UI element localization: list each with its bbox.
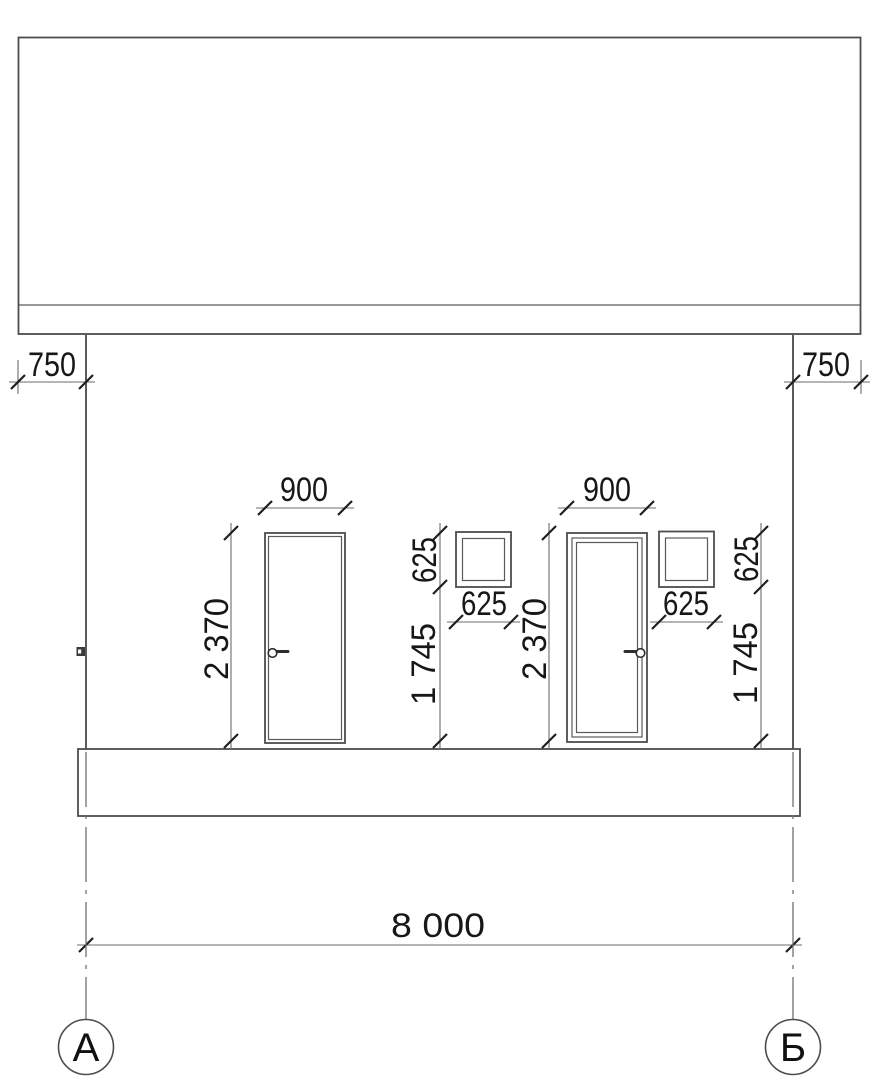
roof-outline [19,38,861,335]
door-left [265,533,345,743]
dim-door-right-height: 2 370 [516,523,556,750]
axis-right-label: Б [780,1026,806,1070]
drawing-canvas: 750 750 900 900 2 370 625 1 745 [0,0,879,1080]
dim-door-right-width: 900 [558,471,656,515]
dim-label-window-right-sill: 1 745 [727,622,765,704]
dim-label-door-right-height: 2 370 [516,598,554,680]
dim-window-right-heights: 625 1 745 [727,523,768,750]
dim-label-door-left-height: 2 370 [198,598,236,680]
window-right [659,532,714,588]
dim-overall-width: 8 000 [77,907,802,952]
wall-handle-mark [77,647,86,656]
door-left-handle-rose [268,649,277,658]
dim-label-window-left-width: 625 [461,585,507,623]
plinth [78,749,800,816]
door-left-frame [265,533,345,743]
dim-window-right-width: 625 [650,585,723,629]
window-right-frame [659,532,714,588]
dim-label-overall-width: 8 000 [391,907,485,945]
axis-left-label: А [73,1026,100,1070]
door-right-handle-rose [636,649,645,658]
dim-label-door-left-width: 900 [280,471,328,509]
dim-label-window-right-width: 625 [663,585,709,623]
dim-label-window-right-height: 625 [728,536,766,582]
dim-label-window-left-height: 625 [406,537,444,583]
dim-label-overhang-right: 750 [802,346,850,384]
dim-label-overhang-left: 750 [28,346,76,384]
dim-label-window-left-sill: 1 745 [405,623,443,705]
wall-mark-dot [78,650,81,654]
window-left [456,532,511,587]
dim-overhang-left: 750 [9,346,95,394]
door-right [567,533,647,742]
roof [19,38,861,335]
dim-door-left-height: 2 370 [198,523,238,750]
dim-label-door-right-width: 900 [583,471,631,509]
elevation-drawing: 750 750 900 900 2 370 625 1 745 [0,0,879,1080]
dim-door-left-width: 900 [256,471,354,515]
dim-overhang-right: 750 [784,346,870,394]
window-left-frame [456,532,511,587]
door-right-frame [567,533,647,742]
dim-window-left-heights: 625 1 745 [405,523,447,750]
dim-window-left-width: 625 [447,585,520,629]
